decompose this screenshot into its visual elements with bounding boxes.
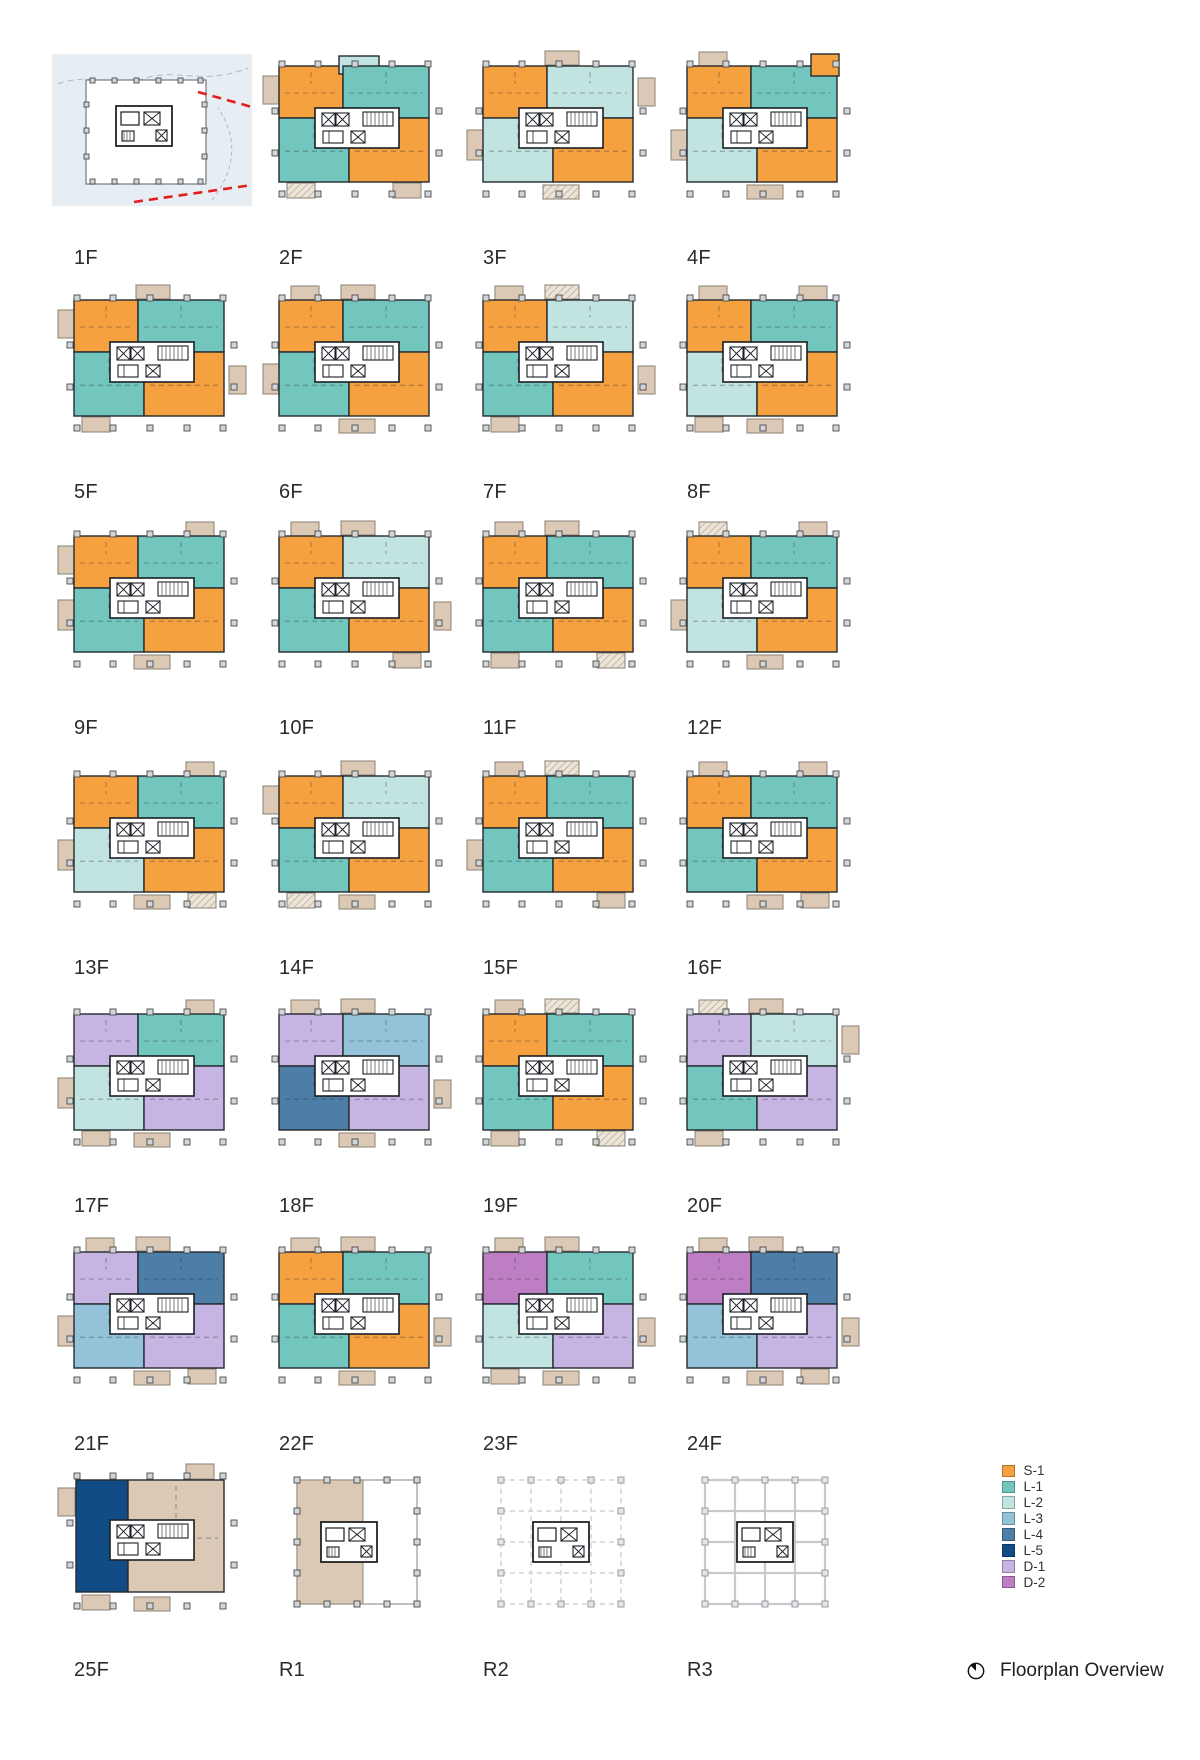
- floorplan-graphic: [257, 998, 457, 1158]
- legend-swatch: [1002, 1481, 1015, 1494]
- floorplan-graphic: [665, 998, 865, 1158]
- floorplan-graphic: [257, 760, 457, 920]
- floorplan-graphic: [52, 760, 252, 920]
- floorplan-graphic: [665, 1236, 865, 1396]
- floorplan-graphic: [257, 50, 457, 210]
- floorplan-cell-2f: 2F: [257, 50, 462, 282]
- floor-label: 11F: [483, 716, 517, 740]
- floorplan-cell-5f: 5F: [52, 284, 257, 516]
- legend-label: S-1: [1024, 1464, 1045, 1477]
- floorplan-graphic: [461, 520, 661, 680]
- floor-label: R3: [687, 1658, 713, 1682]
- floor-label: 15F: [483, 956, 518, 980]
- floorplan-graphic: [461, 1462, 661, 1622]
- floor-label: 8F: [687, 480, 711, 504]
- legend-label: L-2: [1024, 1496, 1044, 1509]
- floor-label: 24F: [687, 1432, 722, 1456]
- floorplan-cell-r2: R2: [461, 1462, 666, 1694]
- floor-label: 5F: [74, 480, 98, 504]
- floor-label: 10F: [279, 716, 314, 740]
- floor-label: 13F: [74, 956, 109, 980]
- legend-swatch: [1002, 1544, 1015, 1557]
- floorplan-graphic: [52, 1462, 252, 1622]
- floorplan-cell-10f: 10F: [257, 520, 462, 752]
- legend-swatch: [1002, 1560, 1015, 1573]
- floorplan-cell-13f: 13F: [52, 760, 257, 992]
- floor-label: 7F: [483, 480, 507, 504]
- floor-label: R2: [483, 1658, 509, 1682]
- legend-item-d-1: D-1: [1002, 1558, 1045, 1574]
- floorplan-graphic: [665, 760, 865, 920]
- legend-label: L-5: [1024, 1544, 1044, 1557]
- floorplan-sheet: 1F 2F 3F 4F 5F 6F 7F 8F 9F 10F 11F: [0, 0, 1200, 1760]
- floorplan-cell-16f: 16F: [665, 760, 870, 992]
- floorplan-cell-22f: 22F: [257, 1236, 462, 1468]
- floorplan-cell-19f: 19F: [461, 998, 666, 1230]
- legend-label: D-1: [1024, 1560, 1046, 1573]
- legend-item-l-5: L-5: [1002, 1542, 1045, 1558]
- floorplan-graphic: [665, 520, 865, 680]
- floor-label: 2F: [279, 246, 303, 270]
- floorplan-cell-r3: R3: [665, 1462, 870, 1694]
- floorplan-cell-3f: 3F: [461, 50, 666, 282]
- legend-item-l-4: L-4: [1002, 1527, 1045, 1543]
- legend-item-s-1: S-1: [1002, 1463, 1045, 1479]
- floorplan-cell-20f: 20F: [665, 998, 870, 1230]
- legend-item-l-1: L-1: [1002, 1479, 1045, 1495]
- floor-label: 19F: [483, 1194, 518, 1218]
- floorplan-cell-6f: 6F: [257, 284, 462, 516]
- legend-swatch: [1002, 1528, 1015, 1541]
- legend-label: L-3: [1024, 1512, 1044, 1525]
- floorplan-graphic: [461, 50, 661, 210]
- floorplan-cell-15f: 15F: [461, 760, 666, 992]
- floor-label: 3F: [483, 246, 507, 270]
- floorplan-graphic: [52, 284, 252, 444]
- floor-label: 9F: [74, 716, 98, 740]
- floorplan-cell-14f: 14F: [257, 760, 462, 992]
- floorplan-cell-9f: 9F: [52, 520, 257, 752]
- floor-label: 16F: [687, 956, 722, 980]
- floor-label: 6F: [279, 480, 303, 504]
- floorplan-cell-4f: 4F: [665, 50, 870, 282]
- legend-label: D-2: [1024, 1576, 1046, 1589]
- floorplan-cell-23f: 23F: [461, 1236, 666, 1468]
- compass-icon: [966, 1661, 986, 1681]
- floorplan-graphic: [257, 284, 457, 444]
- floorplan-cell-25f: 25F: [52, 1462, 257, 1694]
- floorplan-cell-7f: 7F: [461, 284, 666, 516]
- legend-item-d-2: D-2: [1002, 1574, 1045, 1590]
- floorplan-graphic: [52, 50, 252, 210]
- legend-item-l-3: L-3: [1002, 1511, 1045, 1527]
- floorplan-cell-12f: 12F: [665, 520, 870, 752]
- floorplan-graphic: [665, 50, 865, 210]
- sheet-title: Floorplan Overview: [1000, 1660, 1164, 1682]
- floorplan-graphic: [257, 1462, 457, 1622]
- floorplan-graphic: [461, 760, 661, 920]
- floorplan-graphic: [665, 1462, 865, 1622]
- floorplan-graphic: [52, 520, 252, 680]
- floorplan-cell-8f: 8F: [665, 284, 870, 516]
- floorplan-cell-r1: R1: [257, 1462, 462, 1694]
- floor-label: 25F: [74, 1658, 109, 1682]
- floorplan-graphic: [461, 1236, 661, 1396]
- legend: S-1L-1L-2L-3L-4L-5D-1D-2: [1002, 1463, 1045, 1590]
- floorplan-graphic: [461, 998, 661, 1158]
- legend-swatch: [1002, 1576, 1015, 1589]
- floorplan-graphic: [665, 284, 865, 444]
- legend-swatch: [1002, 1512, 1015, 1525]
- floor-label: 23F: [483, 1432, 518, 1456]
- floor-label: 4F: [687, 246, 711, 270]
- floorplan-cell-17f: 17F: [52, 998, 257, 1230]
- floor-label: 18F: [279, 1194, 314, 1218]
- legend-label: L-1: [1024, 1480, 1044, 1493]
- floor-label: 22F: [279, 1432, 314, 1456]
- floorplan-cell-21f: 21F: [52, 1236, 257, 1468]
- floor-label: R1: [279, 1658, 305, 1682]
- legend-item-l-2: L-2: [1002, 1495, 1045, 1511]
- floor-label: 17F: [74, 1194, 109, 1218]
- legend-label: L-4: [1024, 1528, 1044, 1541]
- floor-label: 21F: [74, 1432, 109, 1456]
- legend-swatch: [1002, 1465, 1015, 1478]
- floorplan-cell-18f: 18F: [257, 998, 462, 1230]
- floorplan-graphic: [52, 998, 252, 1158]
- floor-label: 12F: [687, 716, 722, 740]
- floorplan-graphic: [257, 520, 457, 680]
- floor-label: 14F: [279, 956, 314, 980]
- floor-label: 1F: [74, 246, 98, 270]
- legend-swatch: [1002, 1496, 1015, 1509]
- floor-label: 20F: [687, 1194, 722, 1218]
- floorplan-graphic: [461, 284, 661, 444]
- floorplan-cell-1f: 1F: [52, 50, 257, 282]
- floorplan-cell-24f: 24F: [665, 1236, 870, 1468]
- floorplan-cell-11f: 11F: [461, 520, 666, 752]
- floorplan-graphic: [257, 1236, 457, 1396]
- floorplan-graphic: [52, 1236, 252, 1396]
- sheet-footer: Floorplan Overview: [966, 1660, 1164, 1682]
